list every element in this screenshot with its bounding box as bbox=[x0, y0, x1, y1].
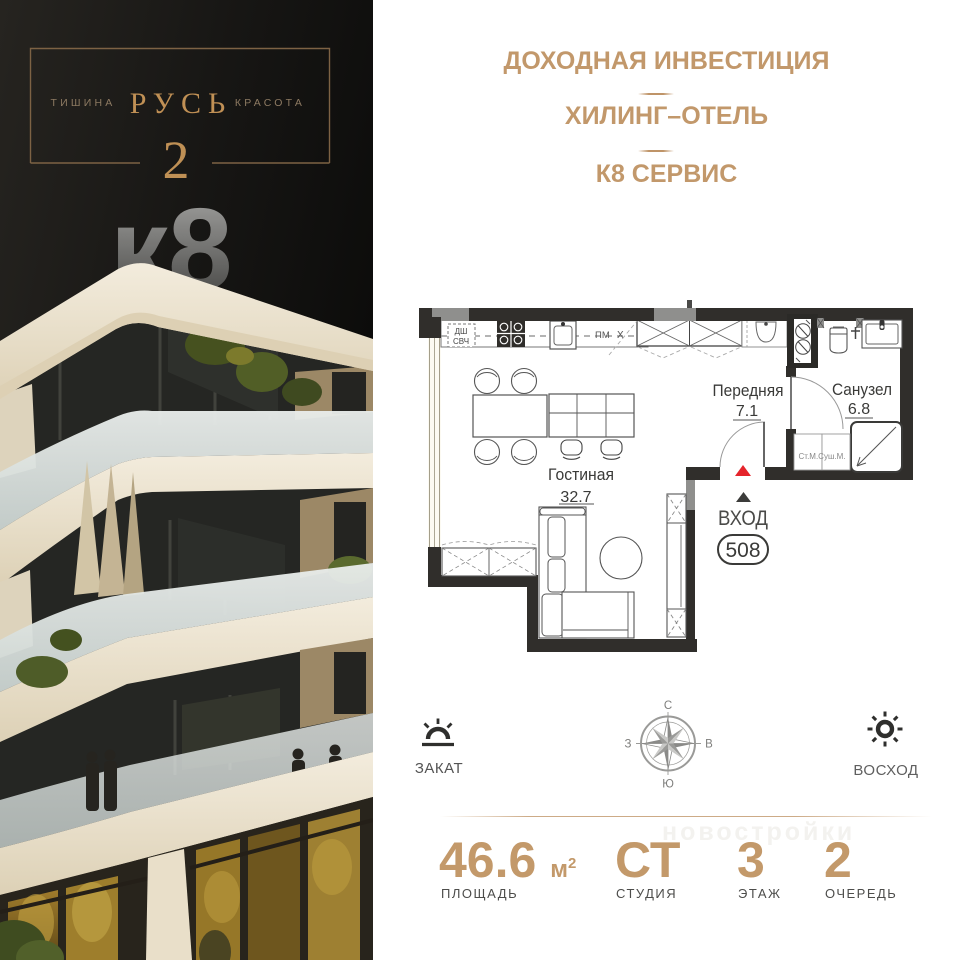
svg-text:ЗАКАТ: ЗАКАТ bbox=[415, 760, 463, 777]
svg-text:ВОСХОД: ВОСХОД bbox=[853, 762, 918, 779]
svg-text:Ю: Ю bbox=[662, 779, 674, 791]
svg-text:ПМ: ПМ bbox=[595, 330, 610, 341]
svg-text:Гостиная: Гостиная bbox=[548, 465, 614, 484]
svg-text:Санузел: Санузел bbox=[832, 380, 892, 399]
svg-text:РУСЬ: РУСЬ bbox=[130, 87, 232, 120]
svg-text:ТИШИНА: ТИШИНА bbox=[51, 97, 116, 109]
svg-text:В: В bbox=[705, 739, 713, 751]
svg-text:508: 508 bbox=[726, 539, 761, 562]
svg-text:ДШ: ДШ bbox=[455, 327, 468, 336]
svg-text:32.7: 32.7 bbox=[560, 489, 591, 506]
svg-text:КРАСОТА: КРАСОТА bbox=[235, 97, 305, 109]
svg-text:6.8: 6.8 bbox=[848, 401, 870, 418]
svg-text:2: 2 bbox=[163, 130, 190, 190]
svg-text:Ст.М.Суш.М.: Ст.М.Суш.М. bbox=[799, 452, 846, 461]
svg-text:Передняя: Передняя bbox=[713, 381, 784, 400]
svg-text:СВЧ: СВЧ bbox=[453, 337, 469, 346]
svg-text:ВХОД: ВХОД bbox=[718, 507, 768, 530]
svg-text:Х: Х bbox=[617, 330, 624, 341]
svg-text:7.1: 7.1 bbox=[736, 403, 758, 420]
svg-text:З: З bbox=[625, 739, 632, 751]
svg-text:С: С bbox=[664, 700, 672, 712]
